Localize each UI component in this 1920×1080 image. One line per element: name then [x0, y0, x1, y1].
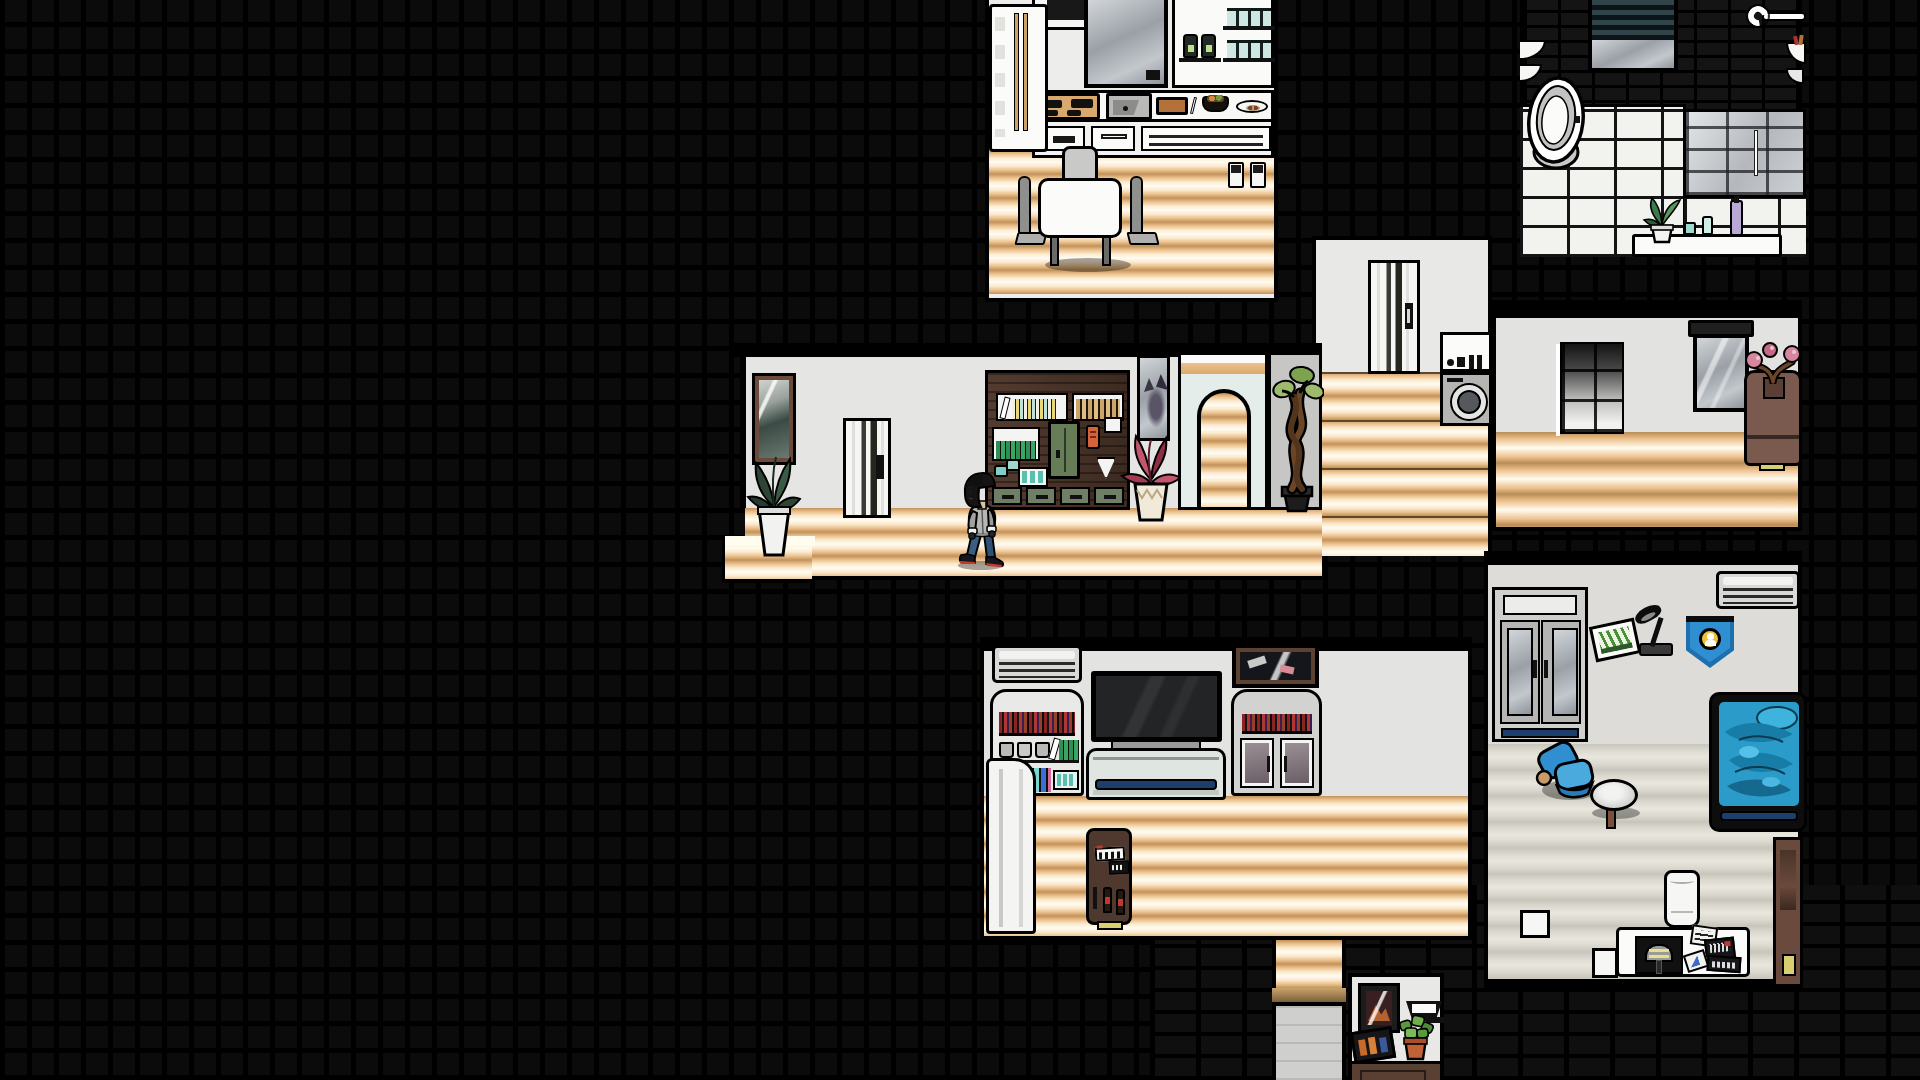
green-books	[996, 441, 1036, 459]
cassette-pattern	[1057, 774, 1075, 786]
washer-knob	[1447, 359, 1454, 366]
appliance-screen	[1231, 165, 1241, 173]
door-seam	[1064, 428, 1066, 472]
room-kitchen	[985, 0, 1278, 302]
towel-bar[interactable]	[1762, 12, 1806, 21]
thin-books	[1012, 399, 1056, 419]
leaning-book	[999, 397, 1010, 420]
green-books	[1059, 740, 1079, 760]
toilet[interactable]	[1526, 74, 1590, 184]
room-living	[722, 343, 1322, 583]
washer-top-unit[interactable]	[1440, 332, 1492, 372]
yellow-stripe	[1649, 949, 1669, 952]
card-text	[1712, 961, 1736, 969]
shelf-board	[1223, 26, 1275, 30]
shower-door-handle[interactable]	[1754, 130, 1758, 176]
stair-edge	[1272, 988, 1346, 1002]
bedroom-bed[interactable]	[1086, 748, 1226, 800]
bottle	[1116, 889, 1125, 915]
appliance-screen	[1253, 165, 1263, 173]
wall-appliance[interactable]	[1250, 162, 1266, 188]
red-leaf-plant	[1118, 428, 1184, 524]
game-viewport[interactable]	[0, 0, 1920, 1080]
room-bathroom	[1520, 0, 1802, 257]
perfume-bottle	[1702, 216, 1713, 235]
flat-tv[interactable]	[1091, 671, 1222, 742]
living-sliding-door[interactable]	[843, 418, 891, 518]
fridge-handle	[1014, 13, 1019, 131]
vending-slot	[1093, 887, 1097, 909]
arch-trim-tan	[1181, 363, 1265, 374]
door-handle-slot	[1407, 309, 1410, 323]
plate-food	[1246, 105, 1260, 111]
glass-shower[interactable]	[1683, 109, 1806, 198]
small-room	[1348, 973, 1444, 1080]
shelf-nook	[996, 393, 1068, 421]
washer-button	[1457, 357, 1465, 367]
game-device[interactable]	[1635, 936, 1683, 974]
twisted-bonsai-tree	[1270, 363, 1324, 515]
red-mark	[1724, 941, 1730, 947]
tan-books	[1076, 399, 1120, 419]
blue-blanket	[1719, 702, 1799, 806]
picture-art	[1240, 652, 1311, 680]
washing-machine[interactable]	[1440, 372, 1492, 426]
dark-jar	[1183, 34, 1198, 58]
dresser[interactable]	[1352, 1061, 1440, 1080]
glare	[1366, 991, 1392, 1025]
room-upper-hall	[1492, 300, 1802, 531]
towel-bar-hook	[1744, 2, 1772, 30]
planter-base	[1759, 463, 1785, 471]
mirror-streak	[1697, 338, 1745, 408]
right-edge-shelf	[1786, 42, 1806, 64]
wood-streak	[1780, 850, 1796, 910]
photo-figure	[1368, 1037, 1378, 1055]
blue-mark	[1688, 955, 1701, 968]
living-potted-plant	[746, 435, 802, 559]
planter-band	[1747, 435, 1799, 439]
tall-planter[interactable]	[1744, 370, 1802, 466]
table-leg	[1050, 236, 1059, 266]
burner	[1046, 100, 1062, 108]
dining-chair-right[interactable]	[1130, 176, 1143, 234]
bed-base	[1093, 790, 1219, 795]
bedroom-floor	[984, 796, 1468, 936]
white-box	[1520, 910, 1550, 938]
teal-cassette-box	[1053, 770, 1079, 790]
wardrobe-door-right[interactable]	[1541, 620, 1581, 724]
logo-scribble	[1099, 851, 1123, 859]
cup	[1684, 222, 1696, 235]
glass-door-left[interactable]	[1240, 738, 1274, 788]
kitchen-sink[interactable]	[1106, 93, 1152, 120]
bathroom-plant	[1640, 192, 1684, 244]
room-stair-nook	[1272, 940, 1448, 1080]
photo-figure	[1379, 1037, 1388, 1053]
mirror-panel	[1552, 628, 1578, 716]
wall-appliance[interactable]	[1228, 162, 1244, 188]
cabinet-books	[1242, 714, 1312, 734]
photo-figure	[1358, 1039, 1367, 1056]
leaning-photo	[1350, 1026, 1396, 1064]
landscape-art	[1597, 626, 1633, 654]
jar-label	[1206, 45, 1212, 52]
teal-jars-bottom	[1227, 40, 1271, 58]
handle	[1533, 660, 1537, 678]
ac-top	[999, 651, 1075, 659]
tv-glare	[1096, 676, 1217, 737]
arched-doorway[interactable]	[1197, 389, 1251, 507]
window-latch	[1146, 70, 1160, 80]
white-door-panel[interactable]	[986, 758, 1036, 934]
yellow-stripe	[1649, 955, 1669, 958]
cola-vending-machine[interactable]	[1086, 828, 1132, 925]
green-drawer	[1060, 487, 1090, 505]
shelf-board2	[1223, 58, 1275, 62]
tiled-column	[1560, 342, 1624, 434]
picture-art	[1366, 991, 1392, 1025]
elevator-panel[interactable]	[1272, 1002, 1346, 1080]
white-diamond-logo	[1096, 457, 1116, 479]
handle	[1267, 756, 1270, 772]
tile-grout	[1562, 344, 1622, 432]
dresser-panel	[1360, 1070, 1426, 1080]
burner	[1067, 110, 1081, 116]
ac-vents	[999, 662, 1075, 678]
wardrobe-navy-bar	[1501, 728, 1579, 738]
right-edge-shelf2	[1786, 68, 1804, 84]
food-bowl[interactable]	[1202, 96, 1229, 112]
logo-red	[1097, 845, 1103, 848]
stair-column	[1272, 940, 1346, 988]
teal-jars-top	[1227, 8, 1271, 26]
red-books-row	[999, 712, 1075, 736]
fridge-shading	[995, 17, 1005, 137]
drawer-line	[1149, 143, 1263, 146]
burner	[1071, 99, 1093, 108]
ac-vents	[1723, 588, 1793, 604]
cutting-board[interactable]	[1156, 97, 1188, 115]
fridge-handle	[1023, 13, 1028, 131]
room-study	[1484, 551, 1802, 988]
lamp-base	[1639, 643, 1673, 656]
bed-navy-stripe	[1095, 779, 1217, 790]
door-handle	[1405, 303, 1413, 329]
wardrobe-top-panel	[1503, 595, 1577, 615]
drawer-wide	[1141, 126, 1271, 151]
jar-label	[1188, 45, 1194, 52]
study-air-conditioner[interactable]	[1716, 571, 1800, 609]
ac-top	[1723, 577, 1793, 585]
arch-trim-white	[1181, 355, 1265, 363]
food-plate[interactable]	[1236, 100, 1268, 113]
mug	[1017, 742, 1032, 758]
wardrobe-door-left[interactable]	[1500, 620, 1540, 724]
cabinet-base	[1782, 954, 1796, 976]
pink-bonsai	[1740, 336, 1806, 384]
sink-drain	[1123, 106, 1128, 111]
detail	[1090, 436, 1096, 438]
glass-pane	[1245, 743, 1269, 783]
green-door-handle	[1056, 450, 1060, 458]
green-drawer	[1026, 487, 1056, 505]
can-line	[1671, 911, 1693, 913]
vending-subpanel	[1109, 860, 1130, 874]
glass-cabinet[interactable]	[1231, 689, 1322, 796]
kitchen-window	[1084, 0, 1168, 88]
subpanel-text	[1112, 865, 1124, 871]
glass-door-right[interactable]	[1280, 738, 1314, 788]
living-floor	[745, 508, 1322, 580]
tall-wooden-cabinet[interactable]	[1773, 837, 1803, 987]
drawer-handle	[1053, 136, 1075, 143]
mirror-panel	[1507, 628, 1533, 716]
player-character[interactable]	[956, 471, 1010, 573]
pennant-top-bar	[1686, 616, 1734, 622]
column-edge	[1556, 344, 1560, 436]
washer-door	[1452, 385, 1486, 419]
panel-line	[1019, 769, 1023, 927]
lamp-shade	[1412, 1004, 1436, 1013]
room-bedroom	[980, 637, 1472, 940]
slot	[1070, 495, 1082, 499]
pennant-gold-circle	[1699, 628, 1721, 650]
door-handle	[876, 455, 884, 479]
bathroom-window	[1588, 0, 1678, 72]
drawer	[1091, 126, 1135, 151]
panel-line	[999, 769, 1003, 927]
study-bed[interactable]	[1709, 692, 1807, 832]
bottle-cap	[1734, 196, 1739, 203]
orange-object	[1086, 425, 1100, 449]
dark-card	[1706, 955, 1741, 973]
round-side-table[interactable]	[1590, 779, 1638, 811]
dining-chair-right-seat	[1126, 232, 1159, 245]
drawer-handle	[1101, 134, 1127, 139]
toothbrush	[1798, 35, 1803, 45]
study-desk[interactable]	[1616, 927, 1750, 977]
slot	[1104, 495, 1116, 499]
bottle-label	[1105, 897, 1110, 904]
shelf-board3	[1179, 58, 1221, 62]
handle	[1544, 660, 1548, 678]
slot	[1036, 495, 1048, 499]
mug	[999, 742, 1014, 758]
dark-jar	[1201, 34, 1216, 58]
small-room-plant	[1392, 1013, 1438, 1065]
kitchen-wall-shelves[interactable]	[1172, 0, 1274, 88]
wardrobe[interactable]	[1492, 587, 1588, 742]
dining-table[interactable]	[1038, 178, 1122, 238]
washer-controls	[1469, 355, 1485, 369]
can-rim	[1670, 878, 1694, 884]
mirror-reflection	[1146, 386, 1166, 428]
washer-vent	[1447, 378, 1463, 382]
teal-box	[1018, 467, 1048, 487]
glass-pane	[1285, 743, 1309, 783]
device-post	[1656, 960, 1662, 974]
table-leg	[1102, 236, 1111, 266]
laundry-sliding-door[interactable]	[1368, 260, 1420, 374]
vending-base	[1097, 921, 1123, 930]
dining-chair-left[interactable]	[1018, 176, 1031, 234]
detail	[1090, 431, 1096, 433]
trash-can[interactable]	[1664, 870, 1700, 928]
bottle	[1103, 887, 1112, 913]
bowl-food	[1207, 95, 1224, 102]
tall-bottle	[1730, 200, 1743, 236]
handle	[1284, 756, 1287, 772]
emblem-shoulders	[1705, 640, 1716, 646]
bed-navy-bar	[1720, 811, 1798, 821]
window-glass	[1592, 40, 1674, 68]
bottle-label	[1118, 899, 1123, 906]
drawer-line	[1149, 135, 1263, 138]
corner-shelf	[1520, 40, 1546, 60]
room-laundry	[1312, 236, 1492, 560]
bed-line	[1093, 757, 1219, 760]
shelf-green-door[interactable]	[1048, 421, 1080, 479]
arched-doorway-wall	[1178, 352, 1268, 510]
bedroom-picture	[1232, 644, 1319, 688]
emblem-head	[1707, 633, 1714, 640]
vending-logo	[1095, 846, 1126, 862]
teal-box-pattern	[1022, 471, 1044, 483]
white-box	[1592, 948, 1618, 978]
air-conditioner[interactable]	[992, 645, 1082, 683]
refrigerator[interactable]	[989, 4, 1048, 152]
shelf-nook	[992, 427, 1040, 461]
window-blinds[interactable]	[1592, 0, 1674, 40]
